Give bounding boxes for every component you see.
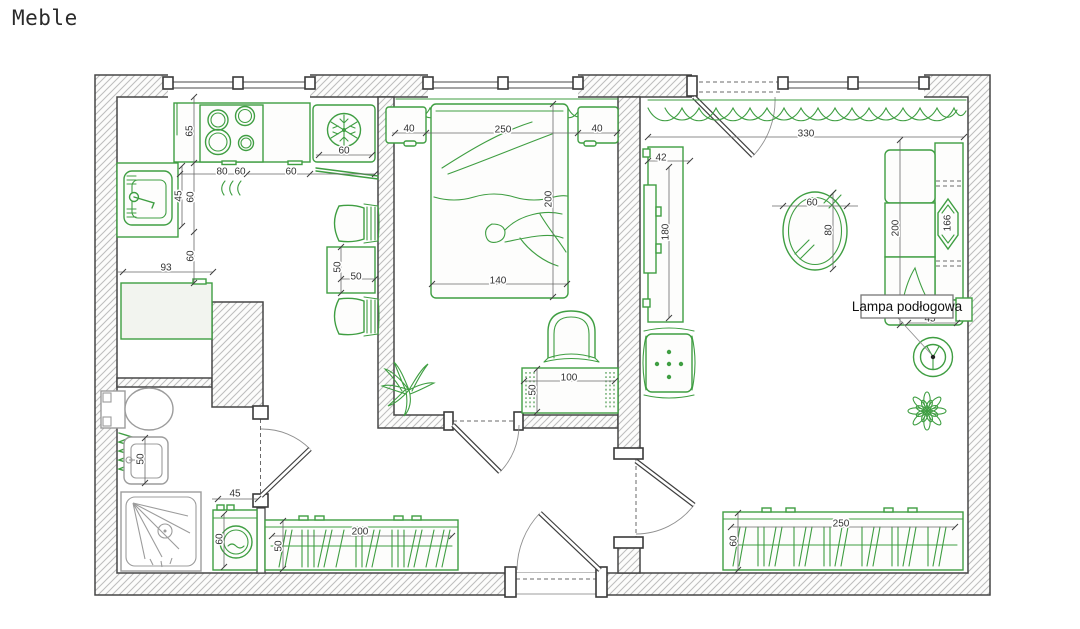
dim-label: 180	[661, 223, 672, 240]
living-plant	[908, 392, 946, 430]
dim-label: 60	[215, 533, 226, 545]
dim-label: 200	[352, 527, 369, 538]
bathroom-door	[253, 406, 310, 507]
dim-label: 60	[729, 535, 740, 547]
dim-label: 50	[528, 384, 539, 396]
bedroom: 40 250 40 200 140 100 50	[382, 99, 620, 416]
dim-label: 50	[333, 261, 344, 273]
dim-label: 80	[216, 167, 228, 178]
hall-wardrobe	[265, 516, 458, 570]
dim-label: 60	[806, 198, 818, 209]
kitchen-sink-counter	[117, 163, 178, 237]
wall-bathroom-top	[117, 378, 212, 387]
pouf	[643, 328, 695, 398]
dim-label: 65	[185, 125, 196, 137]
dim-label: 250	[495, 125, 512, 136]
living-wardrobe	[723, 508, 963, 570]
dim-label: 60	[285, 167, 297, 178]
floor-lamp-label: Lampa podłogowa	[852, 299, 963, 314]
dim-label: 100	[561, 373, 578, 384]
floor-plan-page: Meble	[0, 0, 1080, 629]
toilet	[101, 388, 173, 430]
dim-label: 50	[274, 540, 285, 552]
balcony-door-opening	[687, 74, 783, 99]
floor-plan-svg: 65 45 60 60 93 80 60 60 60 50 50	[0, 0, 1080, 629]
dim-label: 42	[655, 153, 667, 164]
dim-label: 60	[186, 191, 197, 203]
bedroom-window	[423, 74, 583, 99]
chair-top	[335, 205, 365, 241]
living-door	[614, 448, 694, 548]
wall-bedroom-hall	[517, 415, 618, 428]
dim-label: 40	[403, 124, 415, 135]
dim-label: 140	[490, 276, 507, 287]
wall-bathroom-right	[257, 508, 265, 573]
bathroom: 50 45 60	[101, 388, 261, 571]
chair-bottom	[335, 298, 365, 334]
fridge	[313, 105, 378, 179]
wall-bedroom-living	[618, 97, 640, 449]
dim-label: 60	[234, 167, 246, 178]
dim-label: 93	[160, 263, 172, 274]
dim-label: 200	[544, 190, 555, 207]
shower	[121, 492, 201, 571]
entrance-door	[505, 513, 607, 597]
dim-label: 80	[824, 224, 835, 236]
tv	[644, 185, 656, 273]
dim-label: 60	[186, 250, 197, 262]
hallway: 200 50	[265, 516, 458, 572]
kitchen-cabinet	[121, 283, 212, 339]
bedroom-door	[444, 412, 523, 472]
dim-label: 60	[338, 146, 350, 157]
floor-lamp	[914, 338, 953, 377]
dim-label: 45	[229, 489, 241, 500]
living-window	[778, 74, 929, 99]
balcony-door-leaf	[694, 97, 775, 156]
wall-living-hall	[618, 547, 640, 573]
dim-label: 45	[174, 190, 185, 202]
armchair	[544, 311, 599, 362]
dim-label: 50	[350, 272, 362, 283]
dim-label: 200	[891, 219, 902, 236]
fridge-door-swing	[316, 168, 378, 179]
dim-label: 330	[798, 129, 815, 140]
dim-label: 50	[136, 453, 147, 465]
dim-label: 40	[591, 124, 603, 135]
dim-label: 250	[833, 519, 850, 530]
wall-bathroom-column	[212, 302, 263, 407]
kitchen-heat-waves	[222, 181, 241, 195]
dim-label: 166	[943, 214, 954, 231]
living-curtain	[648, 100, 966, 121]
kitchen-window	[163, 74, 315, 99]
